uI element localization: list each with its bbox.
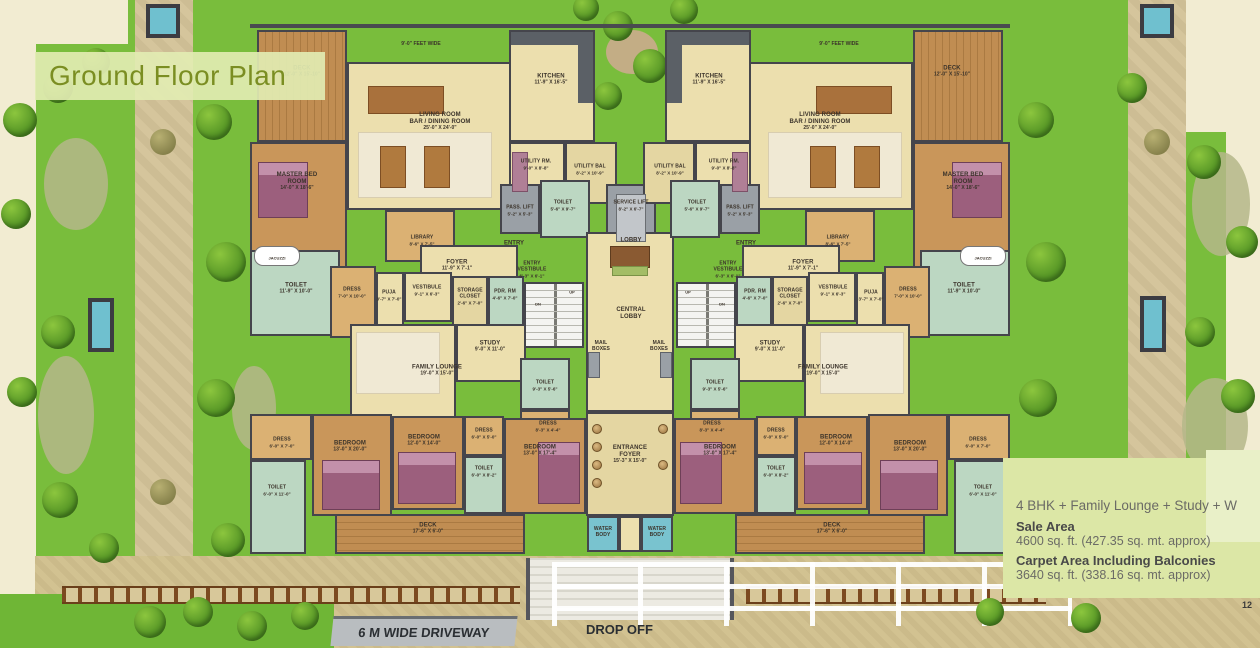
- label-toilet-lift-left: TOILET5'-6" X 9'-7": [551, 200, 576, 211]
- label-entry-vestibule-right: ENTRYVESTIBULE6'-3" X 6'-1": [714, 261, 743, 278]
- tree: [42, 482, 78, 518]
- bush: [150, 129, 176, 155]
- pool-left-edge: [88, 298, 114, 352]
- tree: [1, 199, 31, 229]
- driveway-text: 6 M WIDE DRIVEWAY: [358, 625, 491, 640]
- building-top-wall: [250, 24, 1010, 28]
- tree: [1226, 226, 1258, 258]
- bush: [150, 479, 176, 505]
- label-dress2-right: DRESS6'-0" X 5'-0": [764, 428, 789, 439]
- label-master-left: MASTER BEDROOM14'-0" X 18'-6": [277, 172, 318, 192]
- label-toilet2-right: TOILET6'-0" X 8'-2": [764, 466, 789, 477]
- water-body-divider: [619, 516, 641, 552]
- tree: [594, 82, 622, 110]
- label-bedroom1-right: BEDROOM13'-0" X 20'-0": [893, 441, 926, 454]
- family-rug: [356, 332, 440, 394]
- label-dress-bottom-right: DRESS6'-0" X 7'-0": [966, 437, 991, 448]
- label-bedroom2-right: BEDROOM12'-0" X 14'-0": [819, 435, 852, 448]
- room-vestibule-right: [808, 272, 856, 322]
- label-living-right: LIVING ROOMBAR / DINING ROOM25'-0" X 24'…: [789, 112, 850, 132]
- label-foyer-left: FOYER11'-9" X 7'-1": [442, 260, 472, 273]
- tree: [3, 103, 37, 137]
- label-puja-right: PUJA3'-7" X 7'-0": [859, 290, 884, 301]
- label-toilet-bottom-right: TOILET6'-0" X 11'-0": [969, 485, 996, 496]
- label-entrance-foyer: ENTRANCEFOYER15'-3" X 15'-0": [613, 445, 647, 465]
- label-living-left: LIVING ROOMBAR / DINING ROOM25'-0" X 24'…: [409, 112, 470, 132]
- label-lobby: LOBBY: [621, 229, 642, 248]
- label-dress-master-left: DRESS7'-0" X 10'-0": [338, 287, 365, 298]
- label-entry-vestibule-left: ENTRYVESTIBULE6'-3" X 6'-1": [518, 261, 547, 278]
- tree: [196, 104, 232, 140]
- label-pdr-right: PDR. RM4'-6" X 7'-0": [743, 289, 768, 300]
- planter: [592, 460, 602, 470]
- tree: [633, 49, 667, 83]
- label-dress-family-right: DRESS8'-3" X 4'-4": [700, 421, 725, 432]
- planter: [658, 424, 668, 434]
- reception-desk: [610, 246, 650, 268]
- planter: [592, 478, 602, 488]
- label-bedroom3-right: BEDROOM13'-0" X 17'-4": [703, 445, 736, 458]
- left-margin: [0, 0, 36, 600]
- label-water-body-left: WATERBODY: [594, 527, 612, 539]
- label-mail-left: MAILBOXES: [592, 341, 610, 353]
- carpet-area-label: Carpet Area Including Balconies: [1016, 553, 1216, 568]
- living-runner: [854, 146, 880, 188]
- carpet-area-value: 3640 sq. ft. (338.16 sq. mt. approx): [1016, 568, 1211, 582]
- tree: [670, 0, 698, 24]
- room-deck-top-right: [913, 30, 1003, 142]
- label-storage-left: STORAGECLOSET2'-6" X 7'-0": [457, 288, 482, 305]
- page-title: Ground Floor Plan: [49, 60, 286, 92]
- label-library-right: LIBRARY8'-6" X 7'-5": [826, 235, 851, 246]
- label-dress-master-right: DRESS7'-0" X 10'-0": [894, 287, 921, 298]
- label-toilet-master-right: TOILET11'-9" X 10'-0": [948, 283, 981, 296]
- label-storage-right: STORAGECLOSET2'-6" X 7'-0": [777, 288, 802, 305]
- label-service-lift: SERVICE LIFT8'-2" X 6'-7": [613, 200, 648, 211]
- info-panel-light: [1206, 450, 1260, 542]
- label-toilet2-left: TOILET6'-0" X 8'-2": [472, 466, 497, 477]
- label-toilet-bottom-left: TOILET6'-0" X 11'-0": [263, 485, 290, 496]
- grass-patch: [44, 138, 108, 230]
- pool-right-edge: [1140, 296, 1166, 352]
- tree: [237, 611, 267, 641]
- label-toilet-family-right: TOILET9'-3" X 5'-6": [703, 380, 728, 391]
- tree: [1117, 73, 1147, 103]
- mail-box-unit: [588, 352, 600, 378]
- family-rug: [820, 332, 904, 394]
- label-master-right: MASTER BEDROOM14'-0" X 18'-6": [943, 172, 984, 192]
- label-feet-wide-left: 9'-0" FEET WIDE: [401, 42, 440, 48]
- label-utility-bal-right: UTILITY BAL8'-2" X 10'-9": [654, 164, 686, 175]
- tree: [573, 0, 599, 21]
- tree: [89, 533, 119, 563]
- label-up-left: UP: [569, 281, 575, 300]
- label-dress-bottom-left: DRESS6'-0" X 7'-0": [270, 437, 295, 448]
- tree: [197, 379, 235, 417]
- room-pdr-left: [488, 276, 524, 330]
- sale-area-label: Sale Area: [1016, 519, 1075, 534]
- label-vestibule-left: VESTIBULE9'-1" X 6'-3": [413, 285, 442, 296]
- planter: [592, 424, 602, 434]
- top-left-corner: [0, 0, 128, 44]
- label-deck-bottom-right: DECK17'-6" X 6'-0": [817, 523, 847, 536]
- tree: [134, 606, 166, 638]
- label-dress-family-left: DRESS8'-3" X 4'-4": [536, 421, 561, 432]
- room-pdr-right: [736, 276, 772, 330]
- tree: [7, 377, 37, 407]
- living-runner: [810, 146, 836, 188]
- room-toilet-bottom-right: [954, 460, 1010, 554]
- fence-left: [62, 586, 520, 604]
- label-kitchen-right: KITCHEN11'-9" X 16'-5": [693, 74, 726, 87]
- sale-area-value: 4600 sq. ft. (427.35 sq. mt. approx): [1016, 534, 1211, 548]
- label-library-left: LIBRARY8'-6" X 7'-5": [410, 235, 435, 246]
- label-deck-bottom-left: DECK17'-6" X 6'-0": [413, 523, 443, 536]
- tree: [976, 598, 1004, 626]
- living-runner: [380, 146, 406, 188]
- page-number: 12: [1242, 600, 1252, 610]
- label-up-right: UP: [685, 281, 691, 300]
- bush: [1144, 129, 1170, 155]
- kitchen-counter: [511, 32, 593, 45]
- label-bedroom3-left: BEDROOM13'-0" X 17'-4": [523, 445, 556, 458]
- tree: [1185, 317, 1215, 347]
- tree: [1221, 379, 1255, 413]
- tree: [1026, 242, 1066, 282]
- tree: [1071, 603, 1101, 633]
- mail-box-unit: [660, 352, 672, 378]
- label-vestibule-right: VESTIBULE9'-1" X 6'-3": [819, 285, 848, 296]
- label-deck-top-right: DECK12'-0" X 15'-10": [934, 66, 970, 79]
- dining-table: [368, 86, 444, 114]
- kitchen-counter: [667, 32, 749, 45]
- label-toilet-family-left: TOILET9'-3" X 5'-6": [533, 380, 558, 391]
- label-dn-right: DN: [719, 293, 725, 312]
- room-toilet-bottom-left: [250, 460, 306, 554]
- label-study-right: STUDY9'-0" X 11'-0": [755, 341, 785, 354]
- configuration-text: 4 BHK + Family Lounge + Study + W: [1016, 498, 1237, 513]
- planter: [658, 460, 668, 470]
- label-utility-rm-left: UTILITY RM.9'-0" X 8'-8": [521, 159, 551, 170]
- drop-off-text: DROP OFF: [586, 622, 653, 637]
- label-puja-left: PUJA3'-7" X 7'-0": [377, 290, 402, 301]
- bed: [322, 460, 380, 510]
- pool-top-right: [1140, 4, 1174, 38]
- kitchen-counter: [578, 45, 593, 103]
- title-banner: Ground Floor Plan: [35, 52, 325, 100]
- driveway-label-band: 6 M WIDE DRIVEWAY: [330, 616, 517, 646]
- label-study-left: STUDY9'-0" X 11'-0": [475, 341, 505, 354]
- label-toilet-lift-right: TOILET5'-6" X 9'-7": [685, 200, 710, 211]
- label-pass-lift-right: PASS. LIFT5'-2" X 5'-3": [726, 205, 754, 216]
- grass-patch: [38, 356, 94, 474]
- bed: [398, 452, 456, 504]
- ground-floor-plan-page: 6 M WIDE DRIVEWAY DROP OFF: [0, 0, 1260, 648]
- label-dress2-left: DRESS6'-0" X 5'-0": [472, 428, 497, 439]
- label-entry-left: ENTRY: [504, 232, 524, 251]
- tree: [1018, 102, 1054, 138]
- label-family-lounge-right: FAMILY LOUNGE19'-0" X 15'-0": [798, 365, 848, 378]
- bed: [804, 452, 862, 504]
- dining-table: [816, 86, 892, 114]
- living-runner: [424, 146, 450, 188]
- label-jacuzzi-right: JACUZZI: [975, 247, 992, 266]
- tree: [206, 242, 246, 282]
- label-mail-right: MAILBOXES: [650, 341, 668, 353]
- label-bedroom1-left: BEDROOM13'-0" X 20'-0": [333, 441, 366, 454]
- label-jacuzzi-left: JACUZZI: [269, 247, 286, 266]
- label-dn-left: DN: [535, 293, 541, 312]
- reception-desk-front: [612, 266, 648, 276]
- label-family-lounge-left: FAMILY LOUNGE19'-0" X 15'-0": [412, 365, 462, 378]
- label-bedroom2-left: BEDROOM12'-0" X 14'-0": [407, 435, 440, 448]
- pool-top-left: [146, 4, 180, 38]
- label-pass-lift-left: PASS. LIFT5'-2" X 5'-3": [506, 205, 534, 216]
- tree: [183, 597, 213, 627]
- tree: [1019, 379, 1057, 417]
- label-feet-wide-right: 9'-0" FEET WIDE: [819, 42, 858, 48]
- tree: [1187, 145, 1221, 179]
- bed: [880, 460, 938, 510]
- label-water-body-right: WATERBODY: [648, 527, 666, 539]
- kitchen-counter: [667, 45, 682, 103]
- label-utility-bal-left: UTILITY BAL8'-2" X 10'-9": [574, 164, 606, 175]
- label-central-lobby: CENTRALLOBBY: [616, 307, 645, 321]
- label-entry-right: ENTRY: [736, 232, 756, 251]
- label-toilet-master-left: TOILET11'-9" X 10'-0": [280, 283, 313, 296]
- tree: [41, 315, 75, 349]
- tree: [211, 523, 245, 557]
- tree: [291, 602, 319, 630]
- label-pdr-left: PDR. RM4'-6" X 7'-0": [493, 289, 518, 300]
- label-kitchen-left: KITCHEN11'-9" X 16'-5": [535, 74, 568, 87]
- planter: [592, 442, 602, 452]
- room-vestibule-left: [404, 272, 452, 322]
- label-foyer-right: FOYER11'-9" X 7'-1": [788, 260, 818, 273]
- label-utility-rm-right: UTILITY RM.9'-0" X 8'-8": [709, 159, 739, 170]
